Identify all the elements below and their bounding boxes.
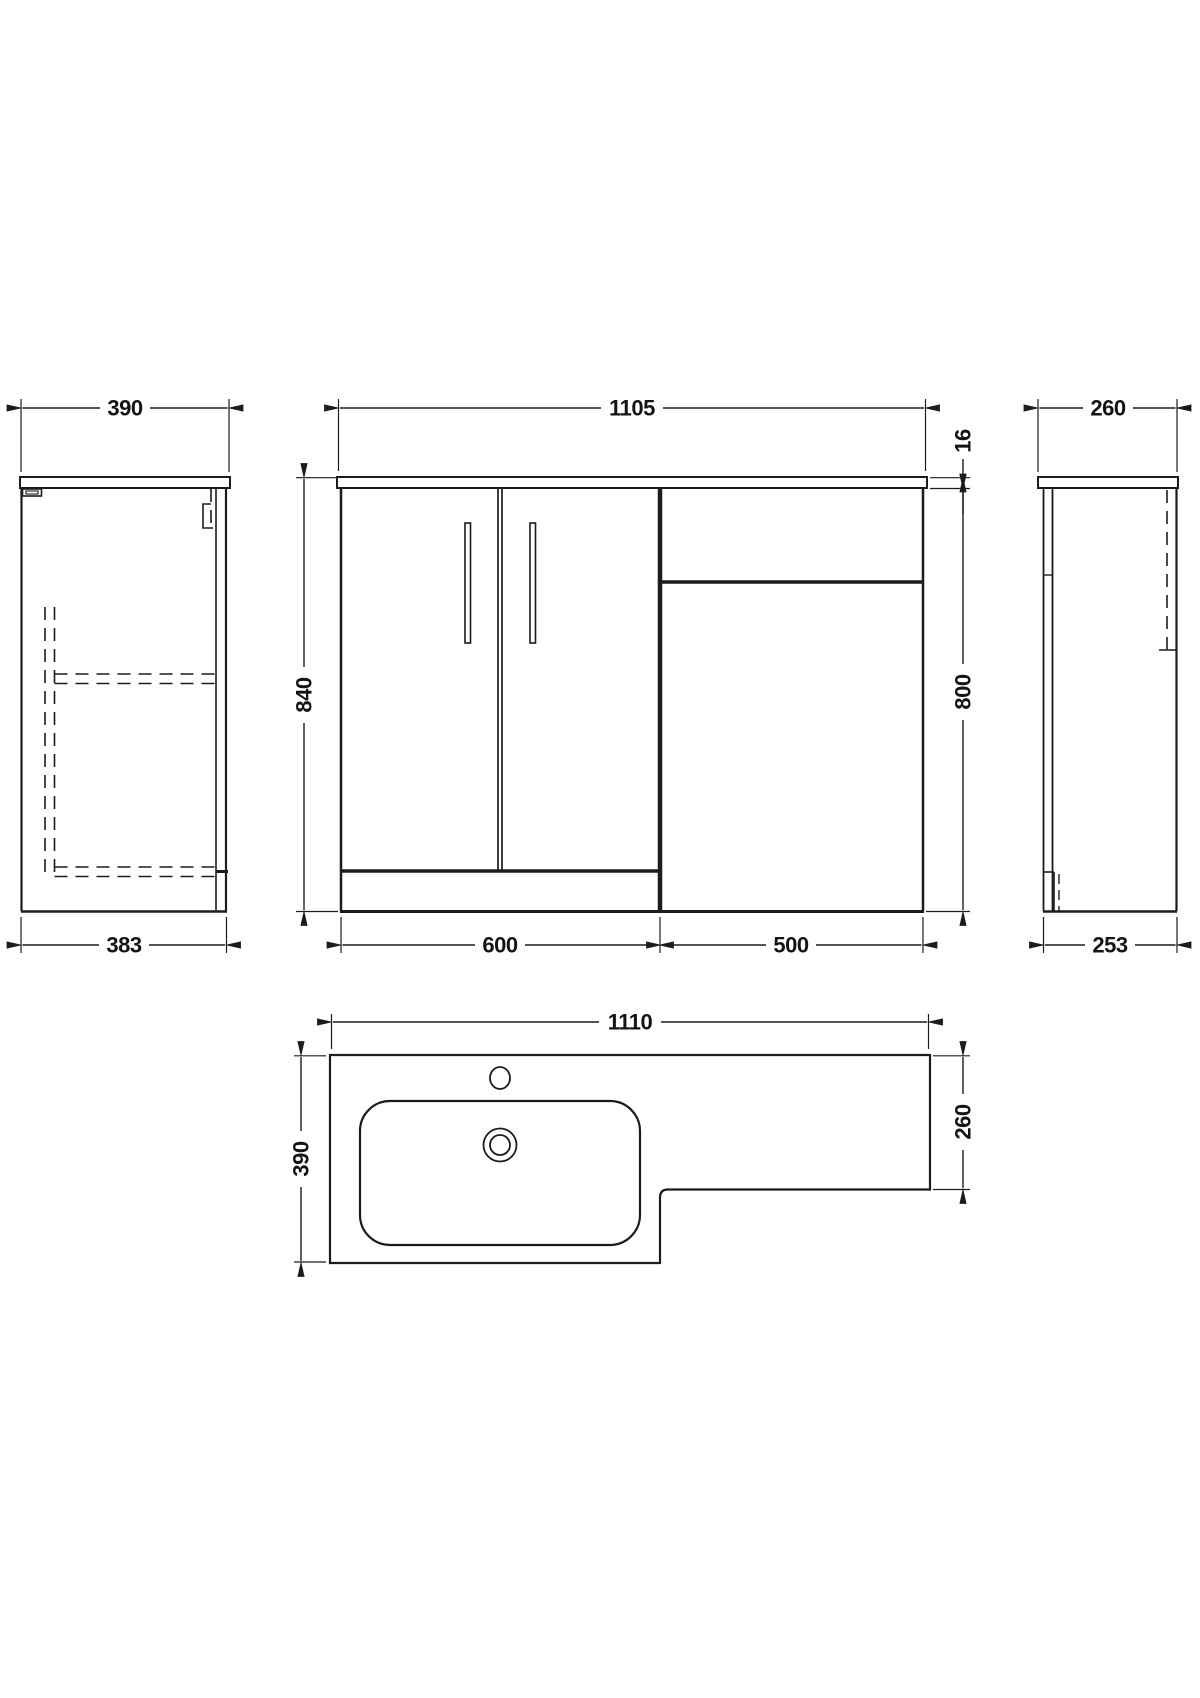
dim-label-390-plan: 390 (289, 1141, 314, 1176)
dim-label-600: 600 (482, 933, 517, 958)
dimension-500-bottom: 500 (662, 917, 923, 958)
worktop-front (337, 477, 927, 488)
left-side-elevation-view: 390 (20, 396, 230, 958)
door-handle-right (530, 523, 536, 643)
dimension-253-bottom: 253 (1044, 917, 1178, 958)
cabinet-front-outline (340, 488, 924, 912)
dimension-16-right: 16 (930, 423, 976, 514)
dimension-1105-top: 1105 (339, 396, 926, 472)
dim-label-840: 840 (292, 677, 317, 712)
front-elevation-view: 1105 840 (292, 396, 976, 958)
dim-label-1110: 1110 (608, 1010, 653, 1035)
dimension-1110-top: 1110 (332, 1010, 929, 1050)
hidden-hinge-detail (203, 489, 213, 531)
waste-hole (484, 1129, 517, 1162)
worktop-side-profile-right (1038, 477, 1178, 488)
door-handle-side (23, 489, 42, 496)
dim-label-16: 16 (951, 429, 976, 453)
plan-view: 1110 390 260 (289, 1010, 976, 1264)
right-side-elevation-view: 260 253 (1038, 396, 1178, 958)
basin-bowl (360, 1101, 640, 1245)
dimension-840-left: 840 (292, 478, 339, 912)
worktop-side-profile (20, 477, 230, 488)
dim-label-260-plan: 260 (951, 1104, 976, 1139)
dim-label-383: 383 (106, 933, 141, 958)
dim-label-390: 390 (107, 396, 142, 421)
technical-drawing-sheet: 390 (0, 0, 1200, 1698)
dimension-800-right: 800 (926, 490, 976, 912)
worktop-plan-outline (330, 1055, 930, 1263)
dimension-260-plan-right: 260 (933, 1056, 976, 1190)
dim-label-1105: 1105 (609, 396, 655, 421)
vanity-unit-dimension-drawing: 390 (0, 0, 1200, 1698)
dimension-600-bottom: 600 (341, 917, 660, 958)
dimension-390-plan-left: 390 (289, 1056, 327, 1262)
cabinet-side-profile (21, 488, 227, 912)
dim-label-253: 253 (1092, 933, 1127, 958)
dimension-383-bottom: 383 (21, 917, 227, 958)
vanity-doors (341, 488, 658, 871)
dim-label-500: 500 (773, 933, 808, 958)
hidden-cistern-line (1159, 490, 1177, 650)
dimension-260-top: 260 (1038, 396, 1177, 473)
dimension-390-top: 390 (21, 396, 229, 473)
dim-label-260-top: 260 (1090, 396, 1125, 421)
plinth-step-detail (1044, 872, 1060, 912)
cabinet-side-profile-right (1043, 488, 1177, 912)
hidden-basin-shelf-lines (45, 607, 228, 877)
tap-hole (490, 1067, 510, 1089)
dim-label-800: 800 (951, 674, 976, 709)
door-handle-left (465, 523, 471, 643)
